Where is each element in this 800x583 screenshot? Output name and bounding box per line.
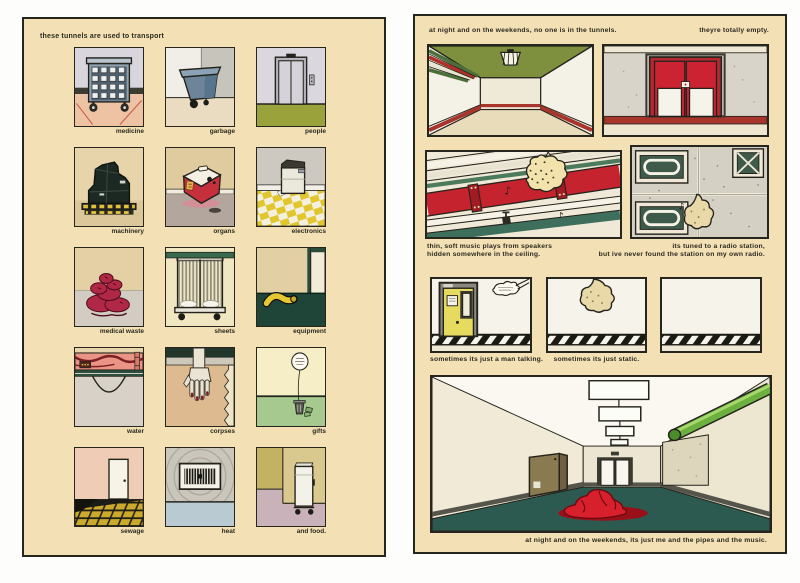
caption-radio: its tuned to a radio station, but ive ne… [599, 243, 765, 260]
caption-empty: theyre totally empty. [699, 27, 769, 35]
medical-waste-panel-art [74, 247, 144, 327]
panel-yellow-door [430, 277, 532, 353]
empty-wall-illustration [662, 279, 760, 351]
panel-gifts: gifts [256, 347, 326, 435]
panel-ceiling-lights: ♪ [630, 145, 769, 239]
pipes-speaker-illustration: ♪ ♪ [427, 152, 620, 237]
svg-text:♪: ♪ [679, 201, 685, 212]
hanging-hand-illustration [166, 348, 234, 426]
panel-food: and food. [256, 447, 326, 535]
cage-cart-illustration [166, 248, 234, 326]
transport-grid: medicine [74, 47, 326, 535]
yellow-hose-illustration [257, 248, 325, 326]
equipment-panel-art [256, 247, 326, 327]
medicine-cart-illustration [75, 48, 143, 126]
elevator-illustration [257, 48, 325, 126]
panel-caption: sewage [74, 528, 144, 535]
panel-caption: and food. [256, 528, 326, 535]
caption-music: thin, soft music plays from speakers hid… [427, 243, 552, 260]
caption-static: sometimes its just static. [546, 356, 647, 364]
panel-caption: medical waste [74, 328, 144, 335]
ceiling-from-below-illustration: ♪ [632, 147, 767, 237]
panel-caption: electronics [256, 228, 326, 235]
panel-medicine: medicine [74, 47, 144, 135]
page-title: these tunnels are used to transport [40, 33, 164, 40]
panel-caption: water [74, 428, 144, 435]
panel-heat: heat [165, 447, 235, 535]
panel-caption: organs [165, 228, 235, 235]
panel-caption: medicine [74, 128, 144, 135]
panel-organs: organs [165, 147, 235, 235]
panel-caption: machinery [74, 228, 144, 235]
red-bags-illustration [75, 248, 143, 326]
panel-caption: garbage [165, 128, 235, 135]
machine-on-pallet-illustration [75, 148, 143, 226]
sewage-panel-art [74, 447, 144, 527]
balloon-and-gifts-illustration [257, 348, 325, 426]
panel-sewage: sewage [74, 447, 144, 535]
empty-corridor-illustration [429, 46, 592, 135]
panel-caption: sheets [165, 328, 235, 335]
food-panel-art [256, 447, 326, 527]
corpses-panel-art [165, 347, 235, 427]
panel-sheets: sheets [165, 247, 235, 335]
garbage-tilt-truck-illustration [166, 48, 234, 126]
panel-water: water [74, 347, 144, 435]
panel-machinery: machinery [74, 147, 144, 235]
corridor-red-drape-illustration [432, 377, 770, 531]
machinery-panel-art [74, 147, 144, 227]
page-left: these tunnels are used to transport [22, 17, 386, 557]
water-pipe-illustration [75, 348, 143, 426]
food-cart-illustration [257, 448, 325, 526]
tiled-floor-door-illustration [75, 448, 143, 526]
svg-text:♪: ♪ [504, 185, 511, 198]
copier-illustration [257, 148, 325, 226]
caption-bottom: at night and on the weekends, its just m… [525, 537, 767, 545]
panel-electronics: electronics [256, 147, 326, 235]
panel-caption: gifts [256, 428, 326, 435]
caption-no-one: at night and on the weekends, no one is … [429, 27, 617, 35]
panel-equipment: equipment [256, 247, 326, 335]
panel-pipes-speaker: ♪ ♪ [425, 150, 622, 239]
zine-spread-scan: these tunnels are used to transport [0, 0, 800, 583]
panel-red-doors [602, 44, 769, 137]
panel-empty-corridor [427, 44, 594, 137]
panel-garbage: garbage [165, 47, 235, 135]
panel-static-blob [546, 277, 647, 353]
garbage-panel-art [165, 47, 235, 127]
panel-caption: corpses [165, 428, 235, 435]
panel-corpses: corpses [165, 347, 235, 435]
organ-cooler-illustration [166, 148, 234, 226]
caption-talking: sometimes its just a man talking. [430, 356, 543, 364]
panel-corridor-red-drape [430, 375, 772, 533]
yellow-door-illustration [432, 279, 530, 351]
panel-empty-wall [660, 277, 762, 353]
panel-medical-waste: medical waste [74, 247, 144, 335]
static-blob-illustration [548, 279, 645, 351]
panel-caption: heat [165, 528, 235, 535]
page-right: at night and on the weekends, no one is … [413, 14, 787, 554]
red-doors-illustration [604, 46, 767, 135]
people-panel-art [256, 47, 326, 127]
panel-people: people [256, 47, 326, 135]
electronics-panel-art [256, 147, 326, 227]
gifts-panel-art [256, 347, 326, 427]
medicine-panel-art [74, 47, 144, 127]
panel-caption: people [256, 128, 326, 135]
heating-vent-illustration [166, 448, 234, 526]
heat-panel-art [165, 447, 235, 527]
water-panel-art [74, 347, 144, 427]
panel-caption: equipment [256, 328, 326, 335]
sheets-panel-art [165, 247, 235, 327]
organs-panel-art [165, 147, 235, 227]
